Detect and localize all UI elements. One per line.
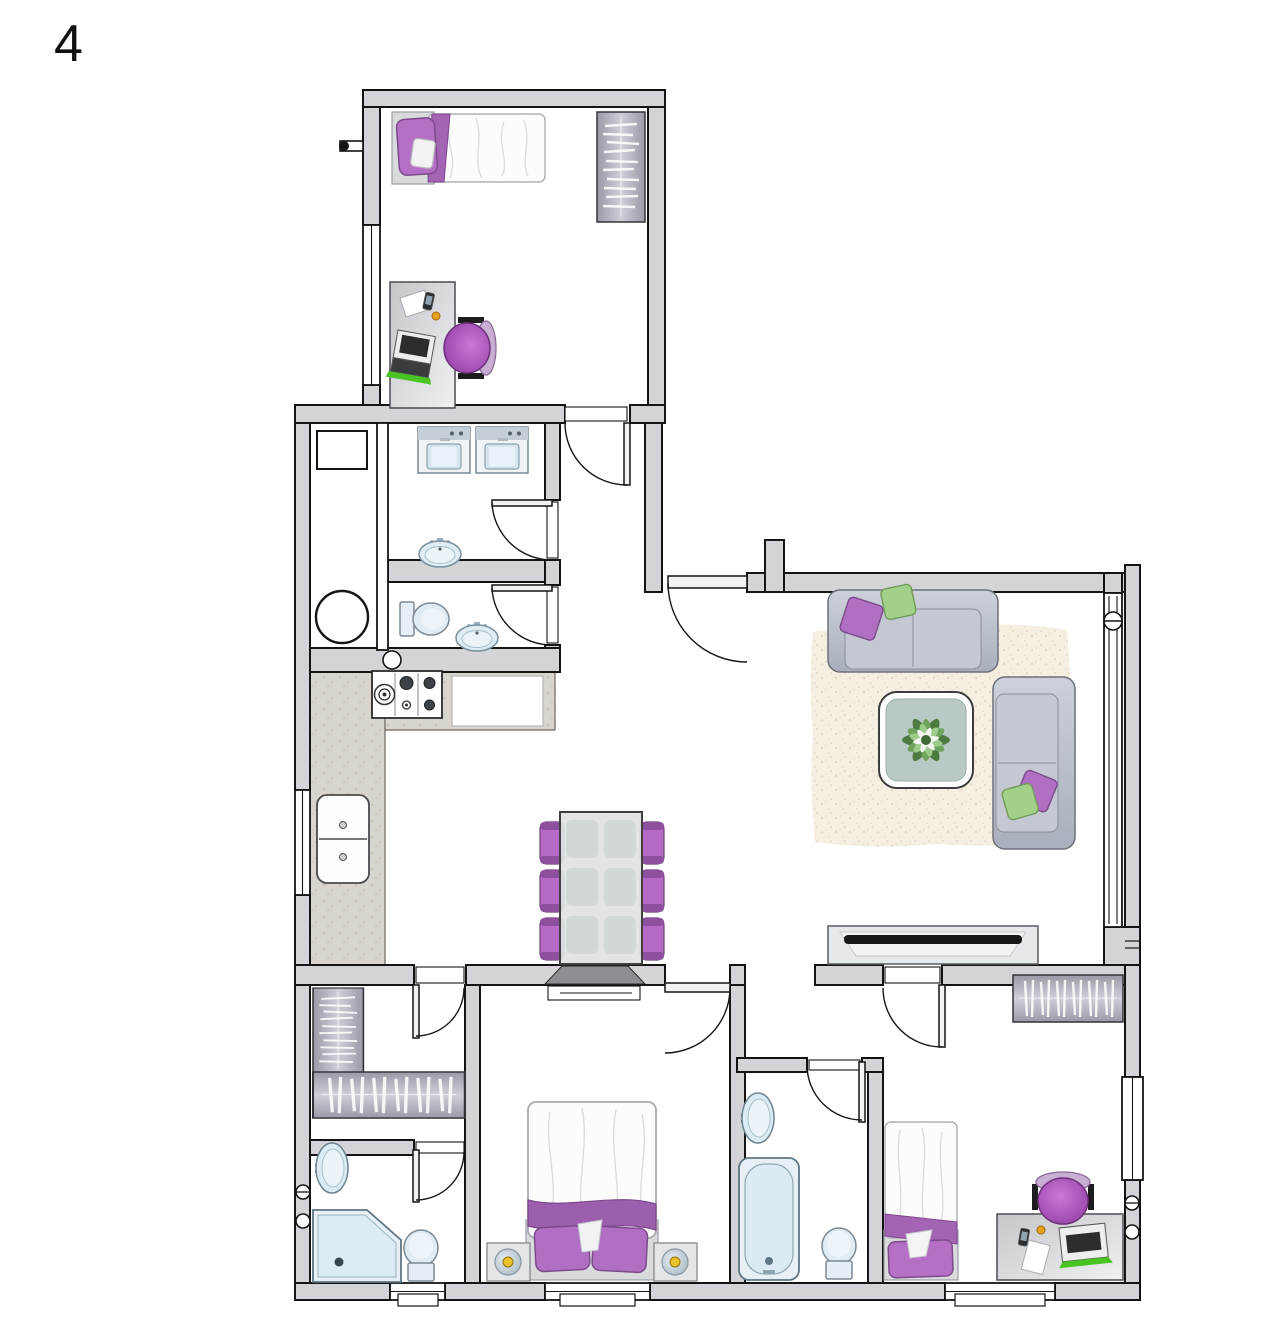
wall-segment — [737, 1058, 807, 1072]
sliding-panel-master — [545, 966, 645, 1000]
washing-machine-2 — [476, 427, 528, 473]
wall-segment — [545, 560, 560, 585]
wall-segment — [1055, 1283, 1140, 1300]
partition-utility — [377, 423, 388, 650]
wall-segment — [363, 385, 380, 405]
wall-segment — [730, 965, 745, 985]
wall-segment — [815, 965, 883, 985]
coffee-table-plant — [879, 692, 973, 788]
dining-set — [540, 812, 664, 964]
wall-segment — [295, 1283, 390, 1300]
wall-segment — [545, 423, 560, 500]
wall-segment — [1125, 565, 1140, 1077]
bed-top-bedroom — [392, 112, 545, 184]
window-living-glass-wall — [1104, 593, 1122, 927]
boiler — [316, 591, 368, 643]
bathtub — [739, 1158, 799, 1280]
counter-appliance-panel — [452, 676, 543, 726]
stove — [372, 671, 442, 718]
wall-cabinet — [317, 431, 367, 469]
wall-segment — [648, 107, 665, 405]
window-bedroom-bottom-right — [1122, 1077, 1143, 1180]
pipe-column — [383, 651, 401, 669]
ensuite-sink — [315, 1143, 348, 1193]
wall-segment — [445, 1283, 545, 1300]
bathroom-sink — [741, 1093, 774, 1143]
wall-segment — [645, 423, 662, 592]
window-kitchen-left — [295, 790, 310, 895]
bathroom-toilet — [822, 1228, 856, 1279]
wall-segment — [310, 648, 560, 672]
wc-toilet — [400, 602, 449, 636]
entry-pillar — [765, 540, 784, 592]
closet-wardrobe-horizontal — [313, 1072, 465, 1118]
window-bedroom-bottom — [945, 1283, 1055, 1306]
sofa-top — [828, 584, 998, 672]
bed-bottom-bedroom — [884, 1122, 958, 1280]
room-hall — [560, 423, 645, 592]
wall-segment — [295, 965, 414, 985]
wall-segment — [388, 560, 545, 582]
wardrobe-top-bedroom — [597, 112, 645, 222]
wall-segment — [747, 573, 1140, 592]
wardrobe-bottom-bedroom — [1013, 975, 1123, 1022]
sofa-right — [993, 677, 1075, 849]
ensuite-toilet — [404, 1230, 438, 1281]
tv-unit — [828, 926, 1038, 964]
wall-segment — [868, 1058, 883, 1283]
wall-segment — [1104, 573, 1122, 593]
floor-plan-drawing — [0, 0, 1280, 1344]
wall-segment — [1104, 927, 1140, 965]
floor-plan-page: 4 — [0, 0, 1280, 1344]
washing-machine-1 — [418, 427, 470, 473]
kitchen-sink — [317, 795, 369, 883]
window-ensuite-bottom — [390, 1283, 445, 1306]
closet-wardrobe-vertical — [313, 988, 363, 1074]
window-master-bottom — [545, 1283, 650, 1306]
wall-segment — [363, 107, 380, 225]
wall-vent — [339, 141, 363, 151]
nightstand-right — [654, 1243, 697, 1281]
nightstand-left — [487, 1243, 530, 1281]
wall-segment — [363, 90, 665, 107]
wall-segment — [650, 1283, 945, 1300]
wall-segment — [465, 985, 480, 1283]
master-bed — [526, 1102, 658, 1280]
wall-segment — [295, 423, 310, 790]
window-bedroom-top-left — [363, 225, 380, 385]
wall-segment — [630, 405, 665, 423]
